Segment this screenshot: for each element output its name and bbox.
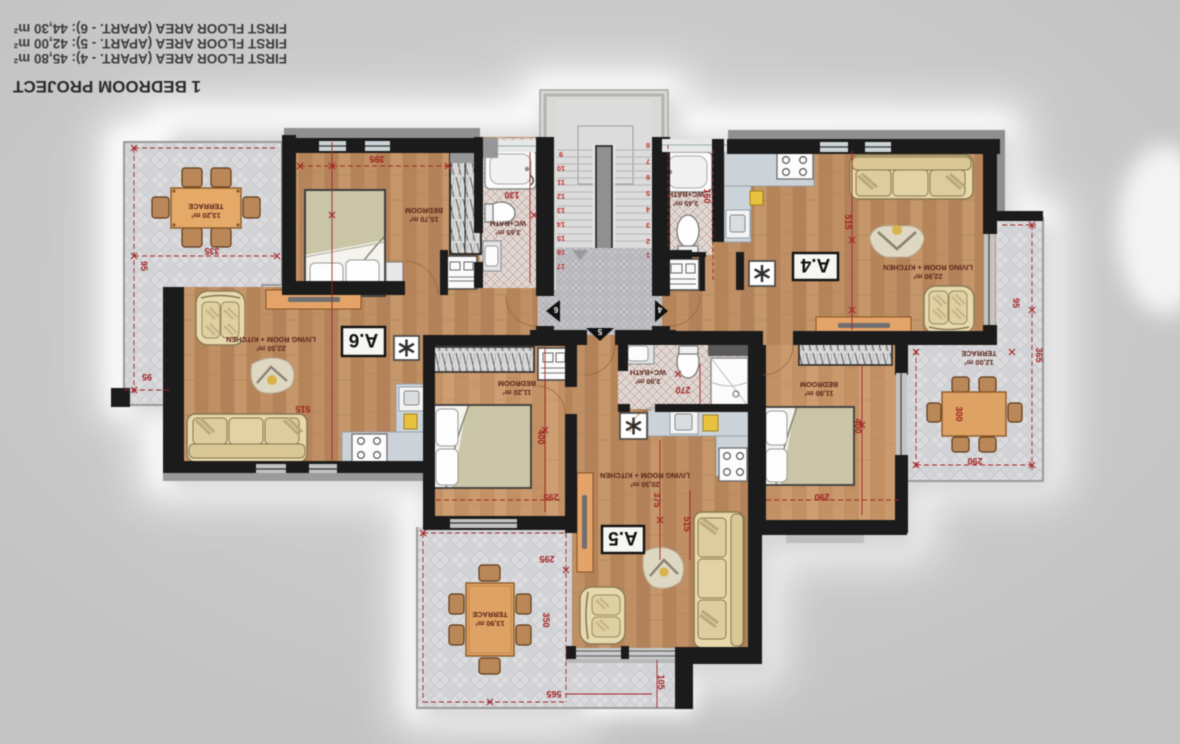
svg-text:BEDROOM: BEDROOM [800,380,838,389]
svg-text:375: 375 [652,492,662,507]
svg-text:FIRST FLOOR AREA (APART. - 6):: FIRST FLOOR AREA (APART. - 6): 44,30 m² [13,21,287,36]
svg-text:LIVING ROOM + KITCHEN: LIVING ROOM + KITCHEN [226,335,316,344]
svg-text:BEDROOM: BEDROOM [405,206,443,215]
svg-text:FIRST FLOOR AREA (APART. - 5):: FIRST FLOOR AREA (APART. - 5): 42,00 m² [13,36,287,51]
svg-text:22,90 m²: 22,90 m² [913,272,943,281]
svg-text:TERRACE: TERRACE [188,202,223,211]
svg-text:WC+BATH: WC+BATH [630,368,666,377]
svg-text:130: 130 [504,190,519,200]
svg-text:13: 13 [557,206,565,215]
svg-text:14: 14 [556,220,565,229]
svg-text:12,00 m²: 12,00 m² [964,358,994,367]
svg-text:1: 1 [646,251,650,260]
svg-text:12: 12 [557,192,565,201]
svg-text:10: 10 [557,164,565,173]
svg-text:17: 17 [557,262,565,271]
svg-text:15,70 m²: 15,70 m² [409,215,439,224]
svg-text:11,80 m²: 11,80 m² [804,389,833,398]
svg-text:16: 16 [557,248,565,257]
svg-text:3,90 m²: 3,90 m² [635,377,661,386]
svg-text:13,20 m²: 13,20 m² [191,211,221,220]
svg-text:95: 95 [142,372,152,382]
svg-text:290: 290 [814,492,829,502]
svg-text:515: 515 [295,404,310,414]
svg-text:3,65 m²: 3,65 m² [495,228,521,237]
svg-text:6: 6 [646,173,650,182]
svg-text:13,90 m²: 13,90 m² [475,619,505,628]
svg-text:295: 295 [539,554,554,564]
svg-text:A.6: A.6 [349,329,379,350]
svg-text:11,20 m²: 11,20 m² [502,388,531,397]
svg-text:4: 4 [657,305,662,314]
svg-text:515: 515 [682,516,692,531]
svg-text:365: 365 [1034,347,1044,362]
svg-text:3,45 m²: 3,45 m² [673,199,699,208]
svg-text:WC+BATH: WC+BATH [668,190,704,199]
svg-text:TERRACE: TERRACE [472,610,507,619]
svg-text:95: 95 [1011,298,1021,308]
svg-text:A.5: A.5 [608,527,638,548]
svg-text:5: 5 [646,189,650,198]
svg-text:295: 295 [543,492,558,502]
svg-text:290: 290 [967,456,982,466]
svg-text:7: 7 [646,157,650,166]
svg-text:WC+BATH: WC+BATH [490,219,526,228]
svg-text:LIVING ROOM + KITCHEN: LIVING ROOM + KITCHEN [883,263,973,272]
svg-text:335: 335 [204,246,219,256]
svg-text:11: 11 [557,178,565,187]
svg-text:A.4: A.4 [800,254,830,275]
svg-text:400: 400 [536,429,546,444]
svg-text:5: 5 [597,327,602,336]
svg-text:BEDROOM: BEDROOM [498,379,536,388]
svg-text:270: 270 [675,385,690,395]
svg-text:6: 6 [553,305,558,314]
svg-text:LIVING ROOM + KITCHEN: LIVING ROOM + KITCHEN [600,471,690,480]
svg-text:TERRACE: TERRACE [961,349,996,358]
svg-text:515: 515 [843,214,853,229]
svg-text:FIRST FLOOR AREA (APART. - 4):: FIRST FLOOR AREA (APART. - 4): 45,80 m² [13,51,287,66]
svg-text:105: 105 [656,674,666,689]
svg-text:300: 300 [954,406,964,421]
svg-text:400: 400 [853,418,863,433]
svg-text:565: 565 [546,689,561,699]
svg-text:22,50 m²: 22,50 m² [256,344,286,353]
svg-text:395: 395 [369,154,384,164]
svg-text:350: 350 [541,612,551,627]
svg-text:9: 9 [559,150,563,159]
svg-text:2: 2 [646,237,650,246]
svg-text:95: 95 [139,261,149,271]
svg-text:1 BEDROOM PROJECT: 1 BEDROOM PROJECT [12,77,201,96]
svg-text:8: 8 [646,141,650,150]
svg-text:15: 15 [557,234,565,243]
svg-text:3: 3 [646,221,650,230]
svg-text:20,30 m²: 20,30 m² [630,480,660,489]
